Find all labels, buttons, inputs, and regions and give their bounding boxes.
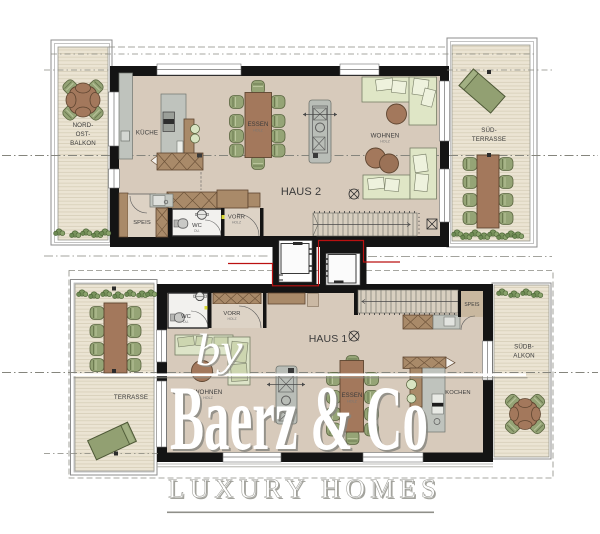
svg-text:OST-: OST- — [76, 131, 91, 138]
svg-text:ESSEN: ESSEN — [248, 122, 269, 128]
svg-text:HOLZ: HOLZ — [253, 129, 263, 133]
svg-text:HOLZ: HOLZ — [227, 317, 236, 321]
svg-text:BALKON: BALKON — [70, 140, 96, 147]
svg-text:SÜDB-: SÜDB- — [514, 344, 534, 351]
svg-text:DU.: DU. — [183, 320, 189, 324]
svg-text:DU.: DU. — [194, 229, 200, 233]
svg-text:HAUS 2: HAUS 2 — [281, 186, 321, 198]
svg-text:SPEIS: SPEIS — [464, 302, 480, 308]
svg-text:SPEIS: SPEIS — [133, 220, 151, 226]
svg-text:TERRASSE: TERRASSE — [114, 394, 148, 401]
svg-text:Baerz & Co: Baerz & Co — [170, 367, 428, 469]
svg-text:TERRASSE: TERRASSE — [472, 136, 506, 143]
svg-text:KOCHEN: KOCHEN — [445, 390, 470, 396]
svg-text:HOLZ: HOLZ — [380, 140, 390, 144]
svg-text:ALKON: ALKON — [513, 353, 534, 360]
svg-text:HAUS 1: HAUS 1 — [309, 333, 348, 345]
svg-text:SÜD-: SÜD- — [481, 127, 497, 134]
svg-text:KÜCHE: KÜCHE — [136, 130, 158, 137]
svg-text:NORD-: NORD- — [73, 122, 94, 129]
svg-text:WOHNEN: WOHNEN — [371, 133, 400, 140]
svg-text:HOLZ: HOLZ — [232, 221, 241, 225]
